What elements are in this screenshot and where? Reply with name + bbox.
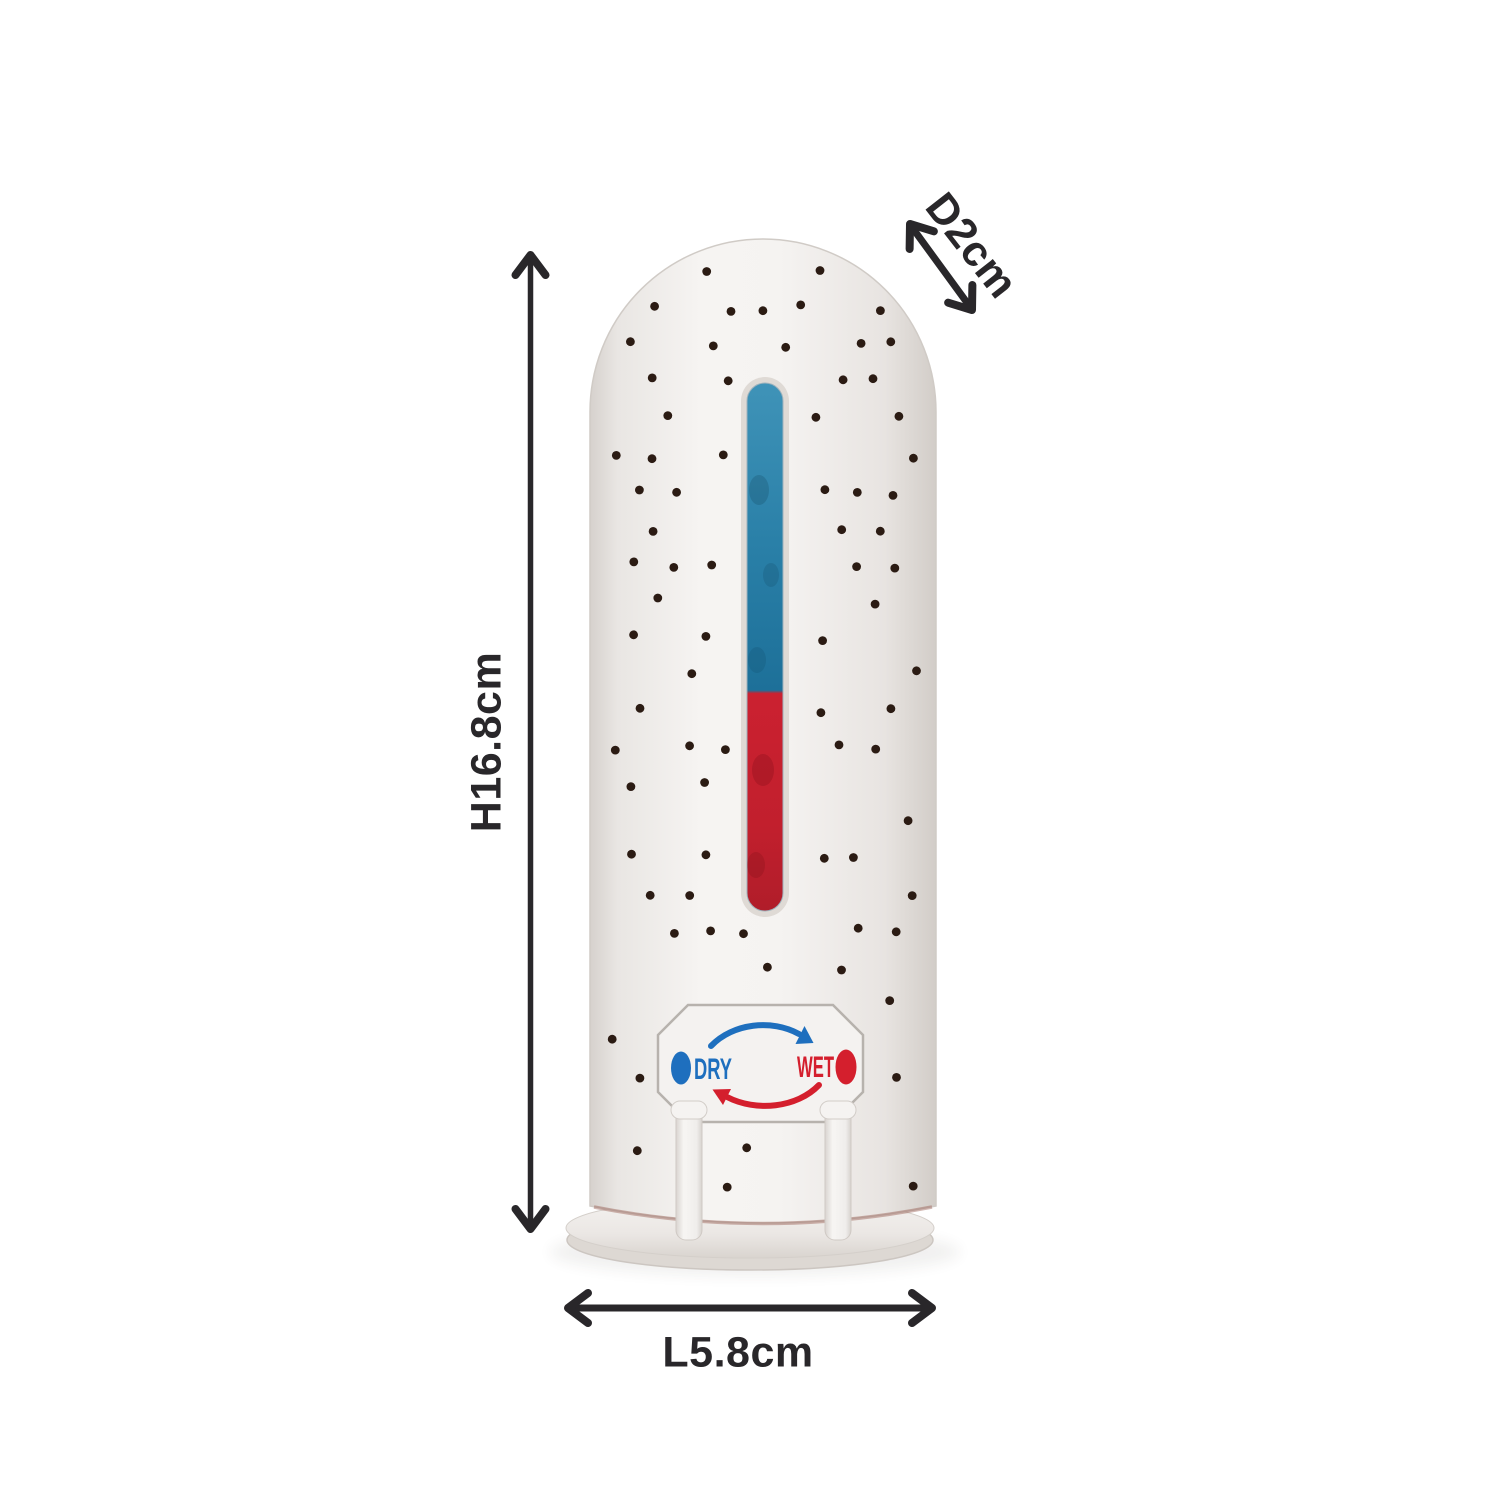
vent-hole — [702, 850, 711, 859]
vent-hole — [724, 376, 733, 385]
vent-hole — [837, 966, 846, 975]
vent-hole — [889, 491, 898, 500]
vent-hole — [719, 451, 728, 460]
vent-hole — [876, 306, 885, 315]
vent-hole — [821, 485, 830, 494]
vent-hole — [646, 891, 655, 900]
vent-hole — [908, 891, 917, 900]
left-prong — [676, 1108, 702, 1240]
vent-hole — [626, 337, 635, 346]
vent-hole — [608, 1035, 617, 1044]
vent-hole — [700, 778, 709, 787]
dry-dot — [671, 1052, 691, 1085]
vent-hole — [849, 853, 858, 862]
vent-hole — [890, 564, 899, 573]
vent-hole — [685, 891, 694, 900]
vent-hole — [871, 745, 880, 754]
vent-hole — [796, 301, 805, 310]
vent-hole — [727, 307, 736, 316]
vent-hole — [653, 594, 662, 603]
height-dimension-label: H16.8cm — [463, 652, 512, 832]
vent-hole — [707, 561, 716, 570]
product-dimension-image: DRY WET — [0, 0, 1500, 1500]
vent-hole — [887, 704, 896, 713]
vent-hole — [909, 1182, 918, 1191]
right-prong — [825, 1108, 851, 1240]
vent-hole — [739, 929, 748, 938]
vent-hole — [839, 375, 848, 384]
right-prong-cap — [820, 1101, 856, 1119]
height-arrow — [516, 255, 546, 1229]
vent-hole — [885, 996, 894, 1005]
vent-hole — [635, 486, 644, 495]
vent-hole — [876, 527, 885, 536]
vent-hole — [650, 302, 659, 311]
vent-hole — [702, 267, 711, 276]
vent-hole — [687, 669, 696, 678]
vent-hole — [759, 306, 768, 315]
vent-hole — [895, 412, 904, 421]
vent-hole — [636, 704, 645, 713]
length-arrow — [568, 1293, 932, 1323]
vent-hole — [706, 927, 715, 936]
indicator-window — [747, 383, 783, 911]
vent-hole — [721, 745, 730, 754]
vent-hole — [742, 1143, 751, 1152]
vent-hole — [627, 782, 636, 791]
vent-hole — [670, 929, 679, 938]
vent-hole — [629, 558, 638, 567]
vent-hole — [869, 374, 878, 383]
vent-hole — [816, 266, 825, 275]
vent-hole — [648, 454, 657, 463]
vent-hole — [835, 741, 844, 750]
vent-hole — [817, 708, 826, 717]
vent-hole — [669, 563, 678, 572]
vent-hole — [629, 630, 638, 639]
vent-hole — [892, 1073, 901, 1082]
vent-hole — [612, 451, 621, 460]
vent-hole — [853, 488, 862, 497]
vent-hole — [857, 339, 866, 348]
vent-hole — [909, 454, 918, 463]
vent-hole — [812, 413, 821, 422]
vent-hole — [818, 636, 827, 645]
vent-hole — [837, 525, 846, 534]
left-prong-cap — [671, 1101, 707, 1119]
wet-dot — [836, 1050, 857, 1085]
vent-hole — [723, 1183, 732, 1192]
wet-label: WET — [797, 1051, 834, 1084]
vent-hole — [820, 854, 829, 863]
vent-hole — [672, 488, 681, 497]
vent-hole — [702, 632, 711, 641]
vent-hole — [886, 337, 895, 346]
dry-label: DRY — [694, 1053, 732, 1086]
length-dimension-label: L5.8cm — [662, 1329, 813, 1378]
vent-hole — [649, 527, 658, 536]
vent-hole — [685, 741, 694, 750]
vent-hole — [633, 1146, 642, 1155]
vent-hole — [854, 924, 863, 933]
vent-hole — [892, 927, 901, 936]
vent-hole — [611, 746, 620, 755]
vent-hole — [636, 1074, 645, 1083]
vent-hole — [627, 850, 636, 859]
vent-hole — [781, 343, 790, 352]
vent-hole — [912, 666, 921, 675]
vent-hole — [871, 600, 880, 609]
vent-hole — [648, 374, 657, 383]
vent-hole — [904, 816, 913, 825]
product-illustration: DRY WET — [0, 0, 1500, 1500]
vent-hole — [663, 411, 672, 420]
vent-hole — [763, 963, 772, 972]
vent-hole — [709, 342, 718, 351]
vent-hole — [852, 562, 861, 571]
